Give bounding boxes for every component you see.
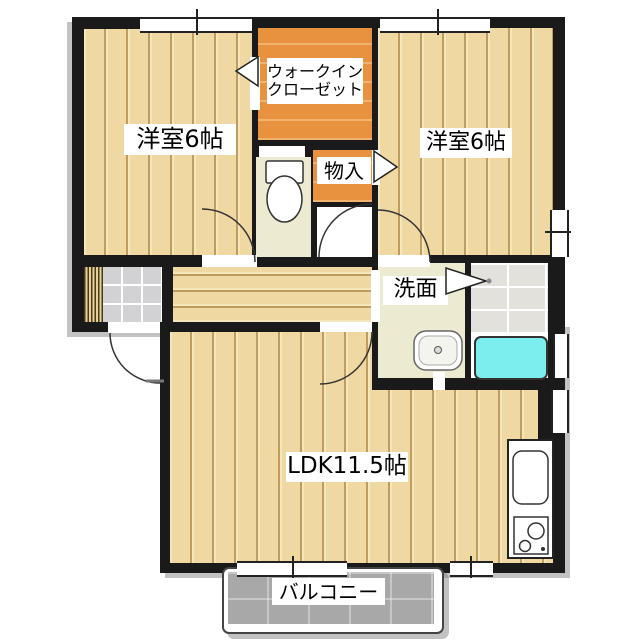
toilet-floor bbox=[256, 157, 311, 257]
floor-plan: 洋室6帖 ウォークイン クローゼット 洋室6帖 物入 洗面 LDK11.5帖 バ… bbox=[0, 0, 640, 640]
bedroom-left-label: 洋室6帖 bbox=[124, 124, 236, 155]
entrance-door-arc bbox=[110, 333, 160, 383]
wic-door-opening bbox=[250, 57, 260, 110]
washroom-door-opening bbox=[371, 270, 380, 322]
storage-label: 物入 bbox=[317, 157, 371, 184]
genkan-tile-floor bbox=[103, 267, 163, 322]
bedroom-right-label: 洋室6帖 bbox=[420, 128, 512, 158]
toilet-shelf bbox=[259, 146, 305, 157]
toilet-vestibule-floor bbox=[317, 207, 372, 257]
window-tick bbox=[292, 556, 294, 578]
bedroom-right-window bbox=[380, 17, 490, 33]
ldk-label: LDK11.5帖 bbox=[286, 452, 408, 482]
wic-label-line1: ウォークイン bbox=[267, 63, 363, 81]
kitchen-side-window bbox=[551, 390, 569, 433]
window-tick bbox=[196, 9, 198, 35]
bedroom-left-door-opening bbox=[202, 255, 257, 267]
storage-door-opening bbox=[372, 150, 380, 185]
walk-in-closet-label: ウォークイン クローゼット bbox=[267, 58, 363, 104]
bedroom-right-side-window bbox=[550, 210, 569, 257]
bathroom-window bbox=[553, 334, 569, 378]
wic-label-line2: クローゼット bbox=[267, 81, 363, 99]
entrance-door-opening bbox=[108, 322, 160, 333]
window-tick bbox=[470, 556, 472, 578]
ldk-door-opening bbox=[320, 322, 372, 332]
bathtub-icon bbox=[474, 336, 548, 380]
bedroom-right-door-opening bbox=[378, 255, 430, 267]
entrance-steps bbox=[84, 267, 103, 322]
balcony-label: バルコニー bbox=[272, 578, 385, 605]
window-tick bbox=[545, 231, 571, 233]
bathroom-tile-floor bbox=[471, 263, 548, 332]
washroom-label: 洗面 bbox=[383, 276, 448, 305]
genkan-wall-stub bbox=[162, 267, 173, 322]
window-tick bbox=[437, 9, 439, 35]
washroom-wall-notch bbox=[433, 372, 445, 390]
